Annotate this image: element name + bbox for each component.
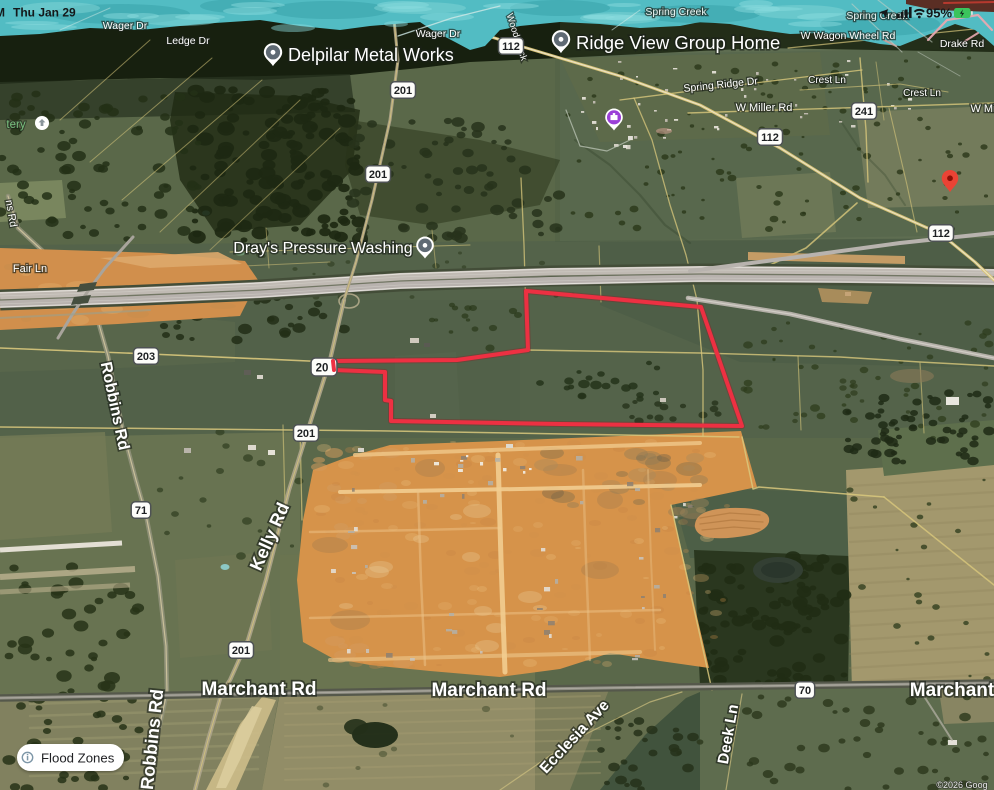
svg-text:Drake Rd: Drake Rd [940, 38, 985, 50]
svg-text:©2026 Goog: ©2026 Goog [936, 780, 987, 790]
svg-text:Thu Jan 29: Thu Jan 29 [13, 6, 76, 20]
svg-text:71: 71 [135, 505, 147, 517]
svg-text:W Wagon Wheel Rd: W Wagon Wheel Rd [801, 30, 896, 42]
svg-text:Spring Creek: Spring Creek [645, 6, 707, 18]
svg-text:20: 20 [316, 363, 329, 375]
svg-text:Ridge View Group Home: Ridge View Group Home [576, 32, 780, 53]
svg-text:201: 201 [394, 85, 412, 97]
svg-text:Wager Dr: Wager Dr [103, 20, 148, 32]
svg-text:tery: tery [6, 119, 25, 131]
svg-text:W Miller Rd: W Miller Rd [736, 102, 793, 114]
svg-text:Wager Dr: Wager Dr [416, 28, 461, 40]
svg-text:Crest Ln: Crest Ln [903, 88, 941, 99]
svg-text:241: 241 [855, 106, 873, 118]
svg-text:W Mi: W Mi [970, 103, 994, 115]
svg-text:112: 112 [761, 132, 779, 144]
svg-text:112: 112 [932, 228, 950, 240]
svg-text:Fair Ln: Fair Ln [13, 263, 47, 275]
svg-text:Marchant Rd: Marchant Rd [431, 680, 546, 701]
svg-text:95%: 95% [926, 6, 952, 21]
svg-text:Marchant: Marchant [910, 680, 994, 701]
svg-text:203: 203 [137, 351, 155, 363]
svg-text:Delpilar Metal Works: Delpilar Metal Works [288, 45, 454, 65]
svg-text:Flood Zones: Flood Zones [41, 751, 115, 766]
svg-text:201: 201 [369, 169, 387, 181]
svg-text:Ledge Dr: Ledge Dr [166, 35, 210, 47]
svg-text:112: 112 [502, 41, 520, 53]
svg-text:70: 70 [799, 685, 811, 697]
svg-text:M: M [0, 6, 5, 20]
svg-text:Marchant Rd: Marchant Rd [201, 679, 316, 700]
svg-text:Dray's Pressure Washing: Dray's Pressure Washing [233, 240, 412, 257]
svg-text:201: 201 [232, 645, 250, 657]
svg-text:201: 201 [297, 428, 315, 440]
svg-text:Crest Ln: Crest Ln [808, 75, 846, 86]
